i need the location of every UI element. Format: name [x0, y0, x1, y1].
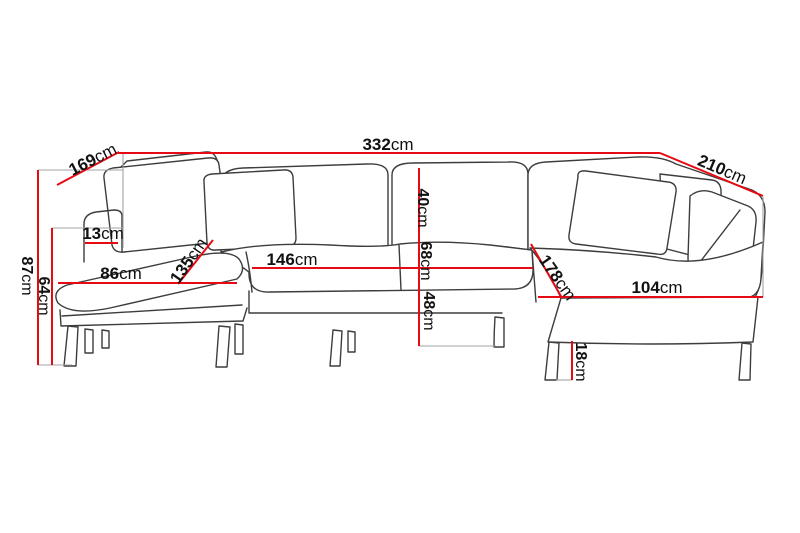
label-seat-depth: 68cm: [418, 241, 435, 280]
label-armrest-height: 64cm: [36, 276, 53, 315]
label-left-seat-width: 86cm: [100, 264, 142, 283]
leg: [235, 324, 243, 354]
label-armrest-width: 13cm: [82, 224, 124, 243]
leg: [739, 343, 751, 380]
sofa-dimension-diagram: 332cm 169cm 210cm 87cm 64cm 13cm 86cm 13…: [0, 0, 800, 533]
label-back-cushion-height: 40cm: [415, 188, 432, 227]
backrest-right-cushion: [392, 162, 528, 250]
leg: [494, 317, 504, 347]
leg: [64, 326, 78, 366]
right-chaise-front: [548, 297, 758, 344]
label-middle-seat-width: 146cm: [266, 250, 317, 269]
label-leg-height: 18cm: [573, 342, 590, 381]
diagram-svg: 332cm 169cm 210cm 87cm 64cm 13cm 86cm 13…: [0, 0, 800, 533]
leg: [348, 331, 355, 352]
leg: [545, 342, 559, 380]
leg: [85, 329, 93, 353]
middle-platform: [249, 291, 502, 313]
label-right-seat-width: 104cm: [631, 278, 682, 297]
label-total-width: 332cm: [362, 135, 413, 154]
leg: [330, 330, 342, 366]
pillow-left-small: [204, 170, 296, 250]
label-total-height: 87cm: [19, 256, 36, 295]
sofa-drawing: [56, 152, 765, 380]
leg: [102, 330, 109, 348]
pillow-corner-front: [569, 171, 676, 255]
leg: [216, 326, 230, 367]
label-seat-height: 48cm: [421, 291, 438, 330]
